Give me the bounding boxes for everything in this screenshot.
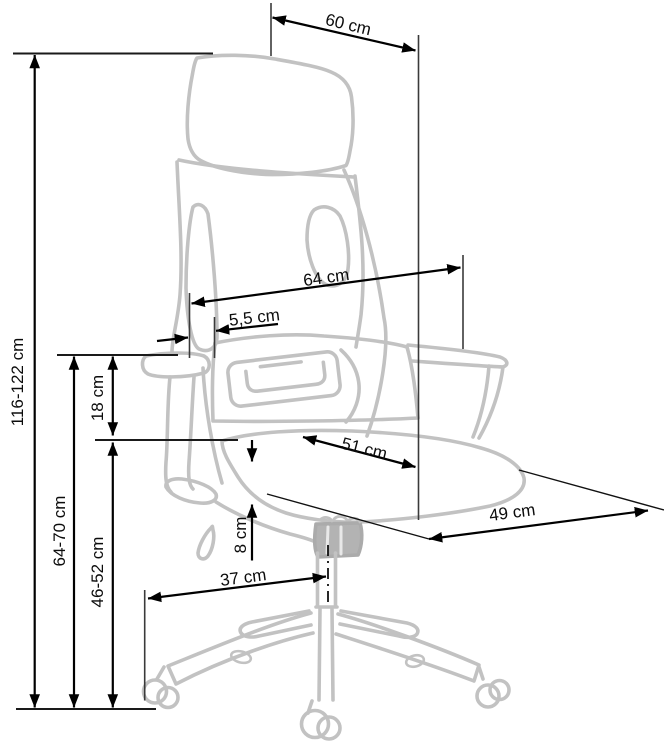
svg-text:51 cm: 51 cm	[340, 434, 390, 464]
svg-text:5,5 cm: 5,5 cm	[228, 305, 281, 330]
svg-text:64 cm: 64 cm	[302, 265, 350, 290]
svg-text:18 cm: 18 cm	[88, 375, 107, 421]
svg-text:46-52 cm: 46-52 cm	[88, 537, 107, 608]
svg-text:37 cm: 37 cm	[219, 565, 267, 590]
svg-text:8 cm: 8 cm	[231, 517, 250, 554]
svg-text:64-70 cm: 64-70 cm	[50, 496, 69, 567]
svg-text:116-122 cm: 116-122 cm	[8, 338, 27, 427]
